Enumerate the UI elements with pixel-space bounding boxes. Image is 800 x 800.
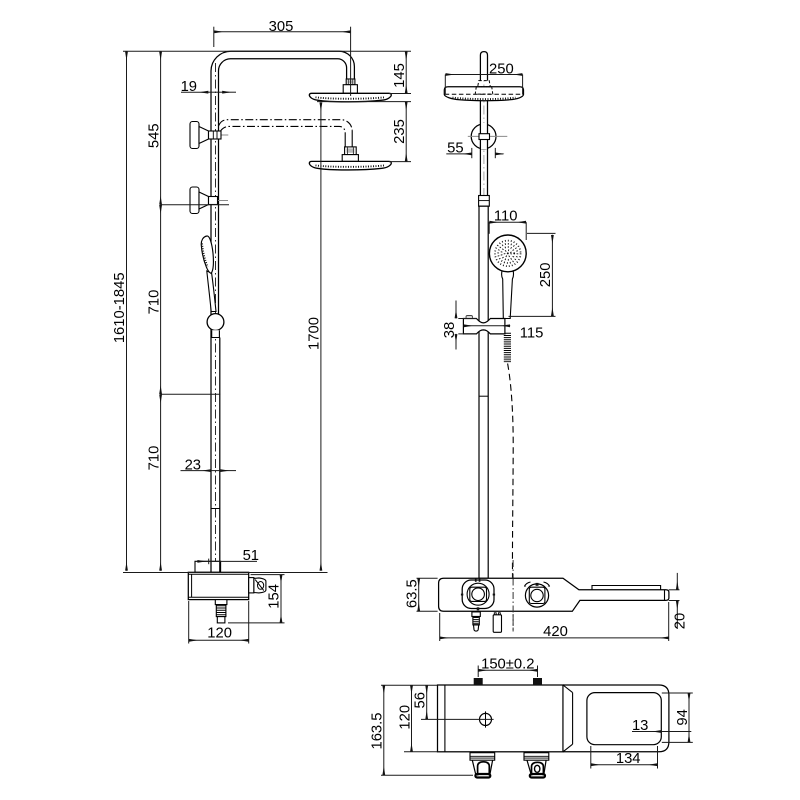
svg-text:134: 134 [616, 751, 641, 767]
svg-text:51: 51 [243, 548, 259, 564]
svg-text:235: 235 [392, 119, 408, 144]
svg-text:710: 710 [146, 290, 162, 315]
svg-text:710: 710 [146, 446, 162, 471]
svg-text:150±0.2: 150±0.2 [481, 656, 534, 672]
svg-text:94: 94 [675, 709, 691, 725]
svg-text:55: 55 [447, 141, 463, 157]
svg-text:120: 120 [207, 625, 232, 641]
svg-text:1610-1845: 1610-1845 [112, 272, 128, 343]
svg-text:63.5: 63.5 [404, 579, 420, 608]
svg-text:420: 420 [543, 624, 568, 640]
svg-text:20: 20 [673, 613, 689, 629]
svg-text:1700: 1700 [307, 317, 323, 350]
svg-text:23: 23 [185, 457, 201, 473]
svg-text:250: 250 [538, 263, 554, 288]
svg-text:38: 38 [442, 322, 458, 338]
svg-text:305: 305 [269, 19, 294, 35]
svg-text:110: 110 [494, 209, 518, 225]
svg-text:19: 19 [181, 79, 197, 95]
svg-text:120: 120 [397, 705, 413, 730]
svg-text:250: 250 [489, 62, 514, 78]
svg-text:115: 115 [520, 326, 544, 342]
svg-text:163.5: 163.5 [370, 712, 386, 749]
svg-text:13: 13 [632, 718, 648, 734]
svg-text:56: 56 [413, 692, 429, 708]
svg-text:154: 154 [267, 584, 283, 609]
svg-text:545: 545 [146, 123, 162, 148]
svg-text:145: 145 [392, 63, 408, 88]
